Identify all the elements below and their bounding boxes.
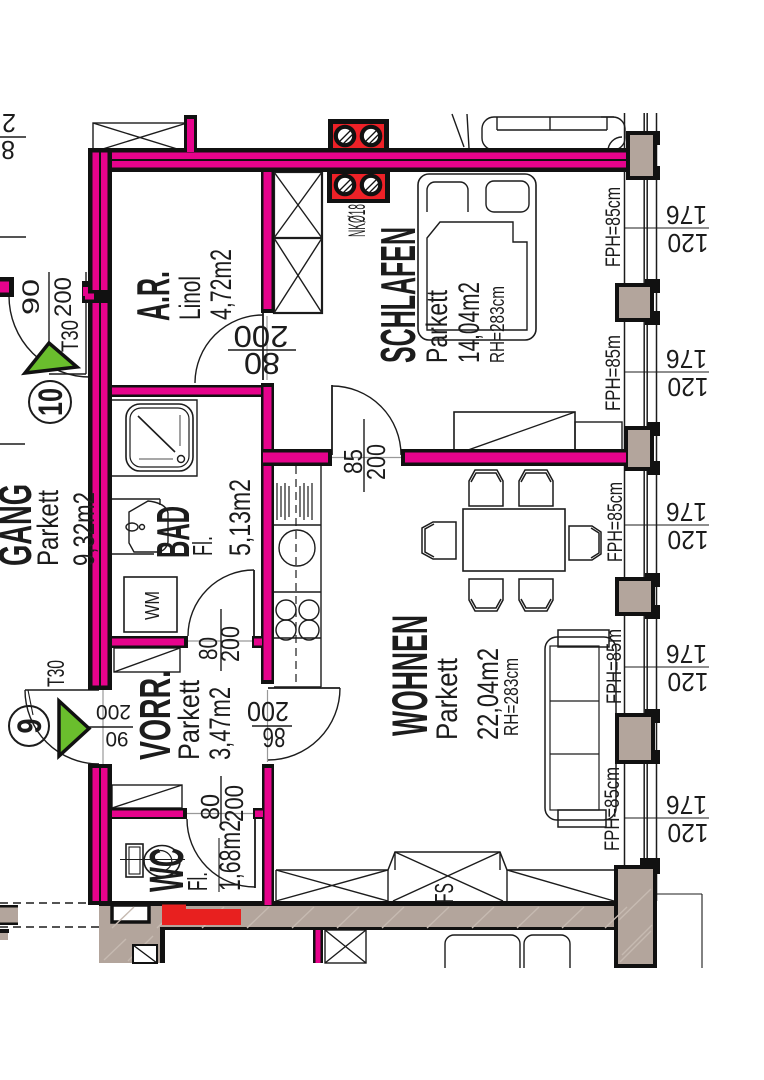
- svg-text:NKØ18: NKØ18: [344, 204, 371, 237]
- svg-text:86: 86: [263, 722, 286, 753]
- svg-text:120: 120: [668, 818, 709, 848]
- svg-text:Parkett: Parkett: [173, 679, 206, 760]
- svg-text:4,72m2: 4,72m2: [205, 249, 238, 320]
- svg-text:T30: T30: [43, 660, 70, 687]
- svg-text:200: 200: [96, 700, 131, 723]
- svg-text:Fl.: Fl.: [187, 536, 218, 556]
- svg-text:176: 176: [666, 790, 707, 820]
- svg-text:SCHLAFEN: SCHLAFEN: [372, 227, 426, 363]
- svg-text:A.R.: A.R.: [127, 271, 179, 321]
- svg-text:14,04m2: 14,04m2: [453, 282, 486, 363]
- svg-text:120: 120: [668, 525, 709, 555]
- svg-text:3,47m2: 3,47m2: [204, 687, 237, 760]
- svg-text:Parkett: Parkett: [421, 289, 454, 363]
- svg-text:9,32m2: 9,32m2: [68, 492, 101, 566]
- svg-text:FPH=85m: FPH=85m: [603, 629, 626, 704]
- svg-text:RH=283cm: RH=283cm: [487, 286, 509, 363]
- svg-text:FPH=85cm: FPH=85cm: [602, 187, 625, 267]
- svg-text:FS: FS: [429, 883, 459, 903]
- svg-text:Fl.: Fl.: [182, 872, 213, 891]
- svg-text:Parkett: Parkett: [32, 489, 65, 566]
- svg-text:200: 200: [215, 626, 245, 662]
- svg-text:176: 176: [666, 200, 707, 230]
- svg-text:200: 200: [361, 444, 391, 480]
- svg-text:WOHNEN: WOHNEN: [382, 615, 438, 736]
- svg-text:120: 120: [668, 667, 709, 697]
- svg-text:120: 120: [668, 228, 709, 258]
- svg-text:176: 176: [666, 344, 707, 374]
- svg-text:2: 2: [2, 108, 16, 138]
- svg-text:200: 200: [50, 277, 77, 317]
- svg-text:RH=283cm: RH=283cm: [501, 658, 523, 736]
- svg-text:FPH=85cm: FPH=85cm: [604, 482, 627, 562]
- svg-text:176: 176: [666, 497, 707, 527]
- svg-text:176: 176: [666, 639, 707, 669]
- svg-text:90: 90: [106, 727, 129, 750]
- svg-text:120: 120: [668, 372, 709, 402]
- svg-text:80: 80: [244, 346, 280, 381]
- svg-text:9: 9: [11, 719, 49, 734]
- svg-text:5,13m2: 5,13m2: [224, 479, 257, 556]
- svg-text:FPH=85m: FPH=85m: [602, 335, 625, 411]
- svg-text:10: 10: [32, 388, 70, 416]
- svg-text:90: 90: [18, 279, 45, 315]
- svg-text:200: 200: [219, 785, 249, 822]
- svg-text:FPH=85cm: FPH=85cm: [601, 767, 624, 851]
- svg-text:T30: T30: [57, 320, 84, 352]
- svg-text:8: 8: [1, 135, 15, 165]
- svg-text:WM: WM: [142, 591, 164, 620]
- svg-text:Parkett: Parkett: [431, 657, 464, 740]
- svg-text:Linol: Linol: [174, 276, 207, 320]
